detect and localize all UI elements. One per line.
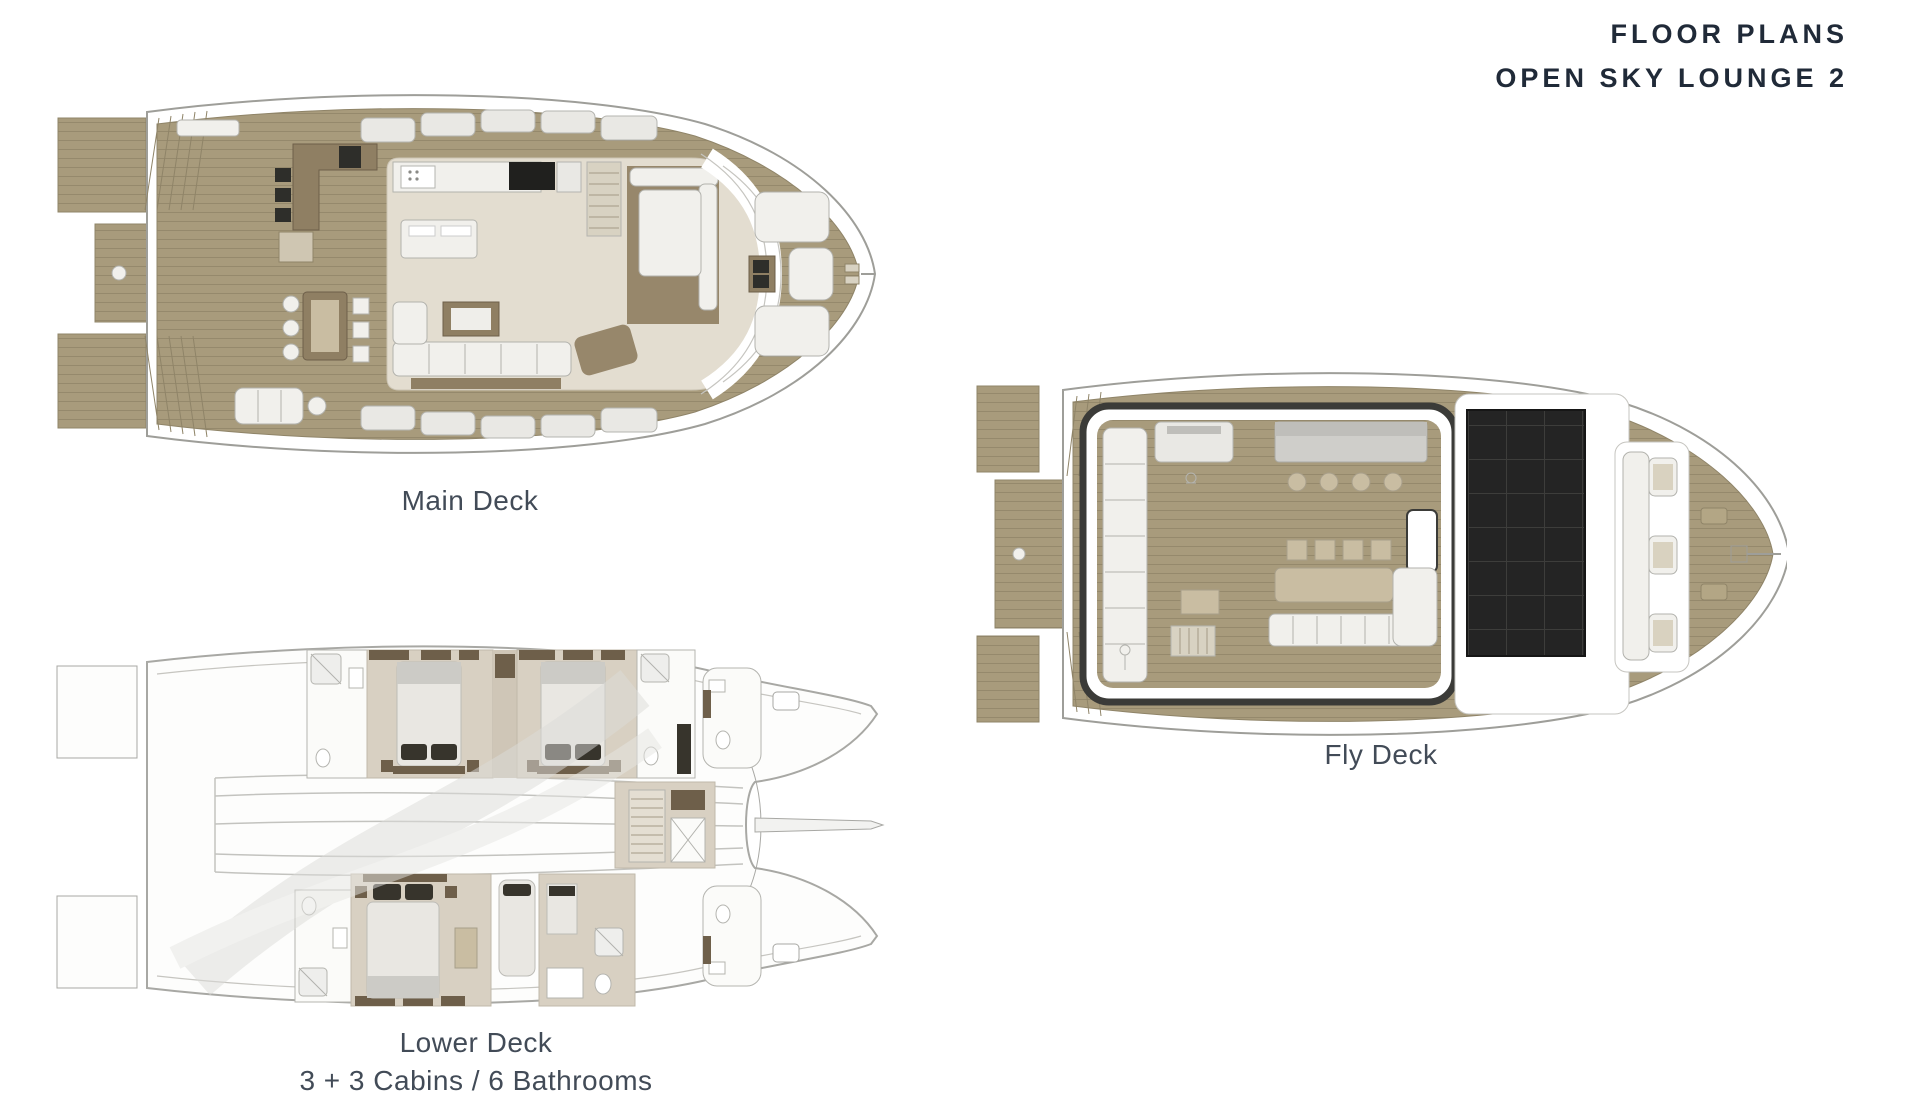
ottoman <box>455 928 477 968</box>
solar-panel <box>1467 410 1585 656</box>
dining-area <box>627 166 719 324</box>
side-table <box>279 232 313 262</box>
bow-hatch <box>773 944 799 962</box>
deck-fitting <box>1013 548 1025 560</box>
anchor-windlass <box>845 264 859 272</box>
grill <box>339 146 361 168</box>
lower-deck-caption: Lower Deck 3 + 3 Cabins / 6 Bathrooms <box>55 1024 897 1100</box>
bowsprit <box>755 818 883 832</box>
lounge-stairs <box>1171 626 1215 656</box>
deck-hatch <box>1701 508 1727 524</box>
fly-deck-label: Fly Deck <box>975 736 1787 774</box>
brochure-page: FLOOR PLANS OPEN SKY LOUNGE 2 <box>0 0 1920 1117</box>
sunpads <box>1103 428 1147 682</box>
fridge-cabinet <box>1407 510 1437 572</box>
side-table <box>1181 590 1219 614</box>
central-landing <box>615 782 715 868</box>
lower-deck-sublabel: 3 + 3 Cabins / 6 Bathrooms <box>55 1062 897 1100</box>
cooktop <box>509 162 555 190</box>
title-layout-name: OPEN SKY LOUNGE 2 <box>1495 56 1848 100</box>
starboard-hull-cabins <box>295 874 799 1006</box>
title-floor-plans: FLOOR PLANS <box>1495 12 1848 56</box>
sideboard <box>411 378 561 389</box>
guest-cabin-1 <box>367 650 493 778</box>
crew-area <box>539 874 635 1006</box>
forward-head-starboard <box>703 886 761 986</box>
owner-cabin <box>351 874 491 1006</box>
deck-fitting <box>112 266 126 280</box>
main-deck-plan <box>55 78 885 470</box>
stern-platforms <box>57 666 137 988</box>
transom-bench <box>235 388 303 424</box>
main-deck-label: Main Deck <box>55 482 885 520</box>
page-title: FLOOR PLANS OPEN SKY LOUNGE 2 <box>1495 12 1848 100</box>
deck-hatch <box>1701 584 1727 600</box>
forward-head-port <box>703 668 761 768</box>
lower-deck-plan <box>55 628 897 1026</box>
lower-deck-label: Lower Deck <box>55 1024 897 1062</box>
sky-lounge <box>1083 406 1455 702</box>
bow-hatch <box>773 692 799 710</box>
salon <box>387 158 771 390</box>
fly-deck-plan <box>975 358 1787 750</box>
dining-table <box>639 190 701 276</box>
staircase <box>629 790 665 862</box>
fridge <box>557 162 581 192</box>
guest-bathroom-aft <box>307 650 367 778</box>
stairs-to-flydeck <box>587 162 621 236</box>
dining-table <box>1275 568 1393 602</box>
